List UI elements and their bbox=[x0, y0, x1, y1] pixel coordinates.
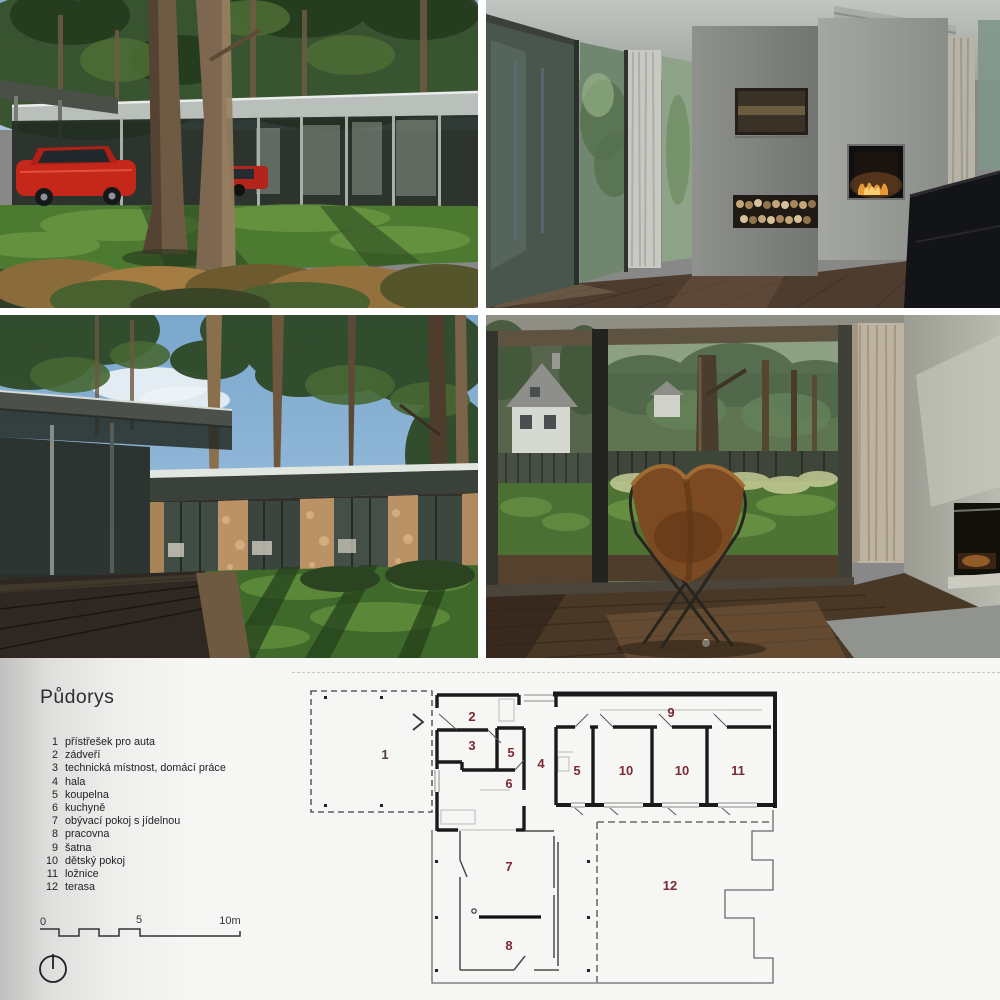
fixture-lines bbox=[441, 699, 762, 830]
room-label: 9 bbox=[667, 705, 674, 720]
room-label: 1 bbox=[381, 747, 388, 762]
room-label: 8 bbox=[505, 938, 512, 953]
carport-photo-illustration bbox=[0, 0, 478, 308]
entry-arrow-icon bbox=[413, 714, 423, 730]
scale-ten: 10m bbox=[219, 915, 240, 927]
photo-carport-exterior bbox=[0, 0, 478, 308]
room-label: 2 bbox=[468, 709, 475, 724]
room-label: 6 bbox=[505, 776, 512, 791]
scale-five: 5 bbox=[136, 914, 142, 926]
chair-symbol bbox=[472, 909, 476, 913]
photo-courtyard-deck bbox=[0, 315, 478, 658]
room-label: 10 bbox=[675, 763, 689, 778]
fireplace-photo-illustration bbox=[486, 0, 1000, 308]
scale-zero: 0 bbox=[40, 916, 46, 928]
room-label: 3 bbox=[468, 738, 475, 753]
terrace-outline bbox=[597, 822, 770, 982]
book-page: Půdorys 1přístřešek pro auta 2zádveří 3t… bbox=[0, 0, 1000, 1000]
chair-photo-illustration bbox=[486, 315, 1000, 658]
room-label: 7 bbox=[505, 859, 512, 874]
carport-outline bbox=[311, 691, 432, 812]
floor-plan-drawing: 1 2 3 5 4 6 9 5 10 10 11 7 8 12 0 5 10m bbox=[0, 658, 1000, 1000]
column-dots bbox=[324, 696, 590, 972]
room-label: 12 bbox=[663, 878, 677, 893]
walls-left-block bbox=[437, 695, 525, 831]
room-label: 5 bbox=[573, 763, 580, 778]
courtyard-photo-illustration bbox=[0, 315, 478, 658]
room-label: 11 bbox=[731, 763, 745, 778]
room-label: 5 bbox=[507, 745, 514, 760]
room-label: 10 bbox=[619, 763, 633, 778]
photo-garden-window-chair bbox=[486, 315, 1000, 658]
north-arrow-icon bbox=[40, 954, 66, 982]
scale-bar: 0 5 10m bbox=[40, 914, 241, 936]
room-label: 4 bbox=[537, 756, 545, 771]
photo-living-room-fireplace bbox=[486, 0, 1000, 308]
walls-right-wing bbox=[553, 694, 777, 808]
deck-boundary bbox=[432, 810, 773, 983]
